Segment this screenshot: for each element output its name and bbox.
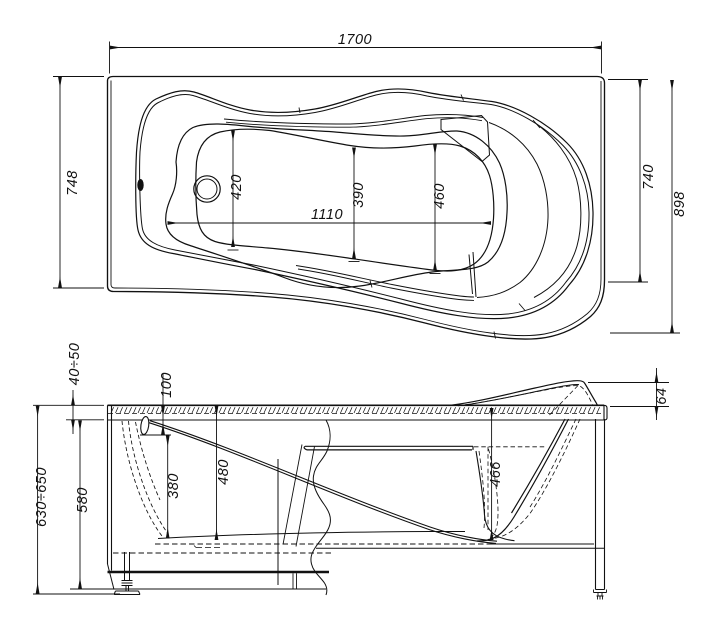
svg-text:390: 390	[351, 182, 367, 208]
svg-text:898: 898	[672, 191, 688, 217]
svg-text:420: 420	[229, 174, 245, 200]
svg-text:580: 580	[75, 487, 91, 513]
svg-text:1700: 1700	[338, 32, 372, 48]
svg-text:740: 740	[641, 164, 657, 190]
svg-text:64: 64	[654, 387, 670, 404]
svg-text:100: 100	[159, 372, 175, 398]
svg-text:460: 460	[432, 183, 448, 209]
svg-text:480: 480	[216, 459, 232, 485]
svg-text:466: 466	[488, 461, 504, 487]
svg-text:1110: 1110	[311, 207, 343, 223]
svg-text:748: 748	[65, 170, 81, 196]
svg-text:630÷650: 630÷650	[34, 467, 50, 527]
svg-text:380: 380	[166, 473, 182, 499]
svg-text:40÷50: 40÷50	[67, 343, 83, 386]
